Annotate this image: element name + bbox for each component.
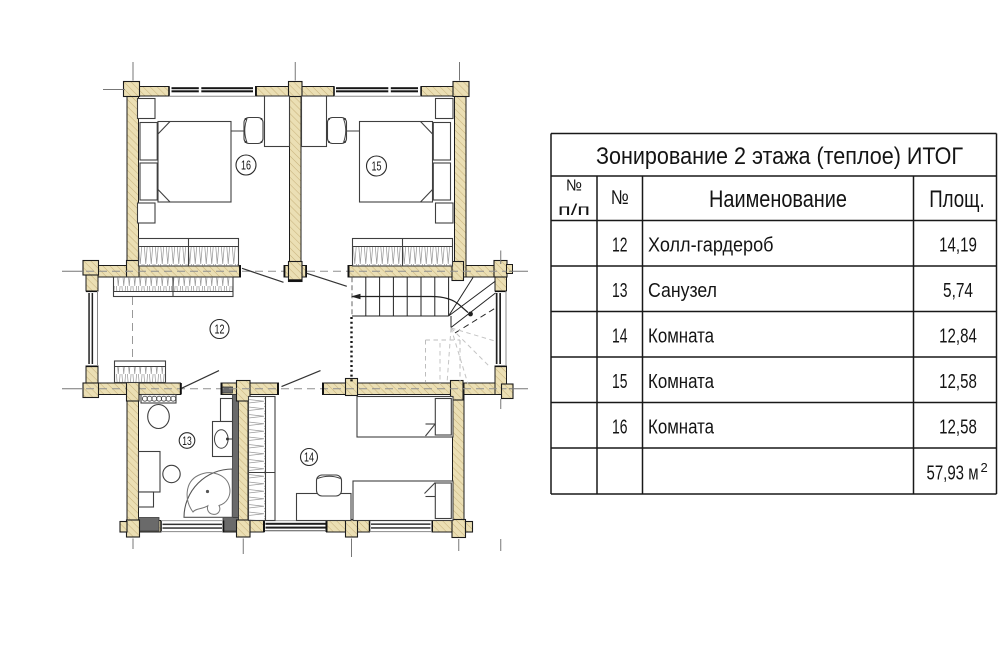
svg-text:12,84: 12,84 (939, 326, 977, 348)
svg-text:Зонирование 2 этажа (теплое) И: Зонирование 2 этажа (теплое) ИТОГ (596, 143, 963, 170)
svg-text:2: 2 (981, 460, 988, 475)
svg-text:16: 16 (241, 158, 251, 173)
svg-text:13: 13 (612, 280, 628, 302)
svg-text:12,58: 12,58 (939, 371, 977, 393)
svg-text:Холл-гардероб: Холл-гардероб (648, 235, 774, 257)
svg-text:57,93 м: 57,93 м (927, 463, 979, 485)
svg-text:Комната: Комната (648, 371, 715, 393)
svg-text:12: 12 (215, 322, 225, 337)
svg-text:15: 15 (612, 371, 628, 393)
svg-text:12,58: 12,58 (939, 417, 977, 439)
svg-text:Комната: Комната (648, 417, 715, 439)
svg-text:п/п: п/п (558, 202, 590, 219)
svg-text:14: 14 (612, 326, 628, 348)
svg-text:Наименование: Наименование (709, 186, 847, 213)
svg-text:Санузел: Санузел (648, 280, 717, 302)
svg-text:14,19: 14,19 (939, 235, 977, 257)
svg-text:№: № (566, 178, 582, 195)
svg-text:14: 14 (304, 450, 314, 464)
svg-text:5,74: 5,74 (943, 280, 973, 302)
svg-text:16: 16 (612, 417, 628, 439)
svg-text:12: 12 (612, 235, 628, 257)
svg-text:13: 13 (182, 434, 192, 448)
svg-text:Площ.: Площ. (929, 186, 985, 213)
svg-text:№: № (611, 187, 629, 209)
svg-text:15: 15 (372, 159, 382, 174)
svg-text:Комната: Комната (648, 326, 715, 348)
